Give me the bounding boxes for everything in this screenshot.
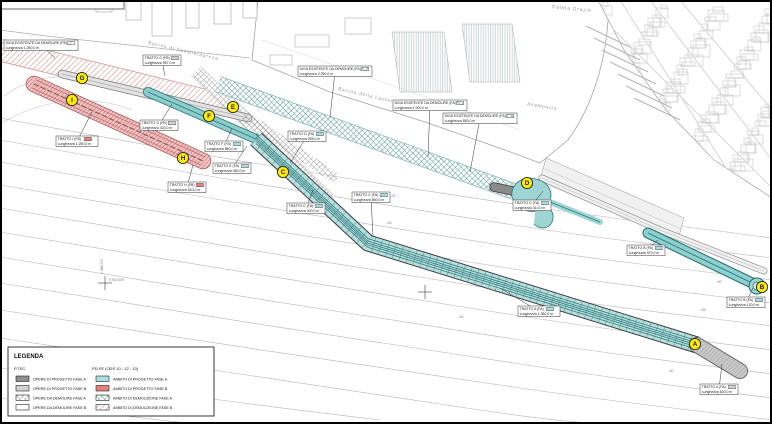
legend-right-header: PD-FE (ODS 10 - 12 - 13) (92, 366, 139, 371)
legend-item-label: AMBITO DI DEMOLIZIONE FASE A (113, 396, 172, 400)
legend-swatch (16, 405, 29, 411)
annotation-title: TRATTO D (FA) (515, 201, 540, 205)
annotation-title: TRATTO A (FA) (520, 307, 544, 311)
city-block (649, 113, 663, 120)
depth-label: -30 (386, 220, 393, 225)
annotation-swatch (457, 101, 464, 104)
section-marker-letter: B (760, 284, 765, 291)
city-block (654, 110, 662, 120)
depth-label: -55 (700, 307, 707, 312)
section-marker-f: F (203, 110, 214, 121)
annotation-title: TRATTO A (FA) (702, 385, 726, 389)
section-marker-c: C (277, 166, 288, 177)
annotation-swatch (541, 201, 548, 204)
city-block (673, 163, 686, 168)
city-block (675, 167, 690, 177)
city-block (670, 170, 678, 177)
city-block (613, 171, 623, 183)
city-block (687, 139, 696, 150)
city-block (659, 187, 676, 195)
annotation-length: Lunghezza 2.250,0 m (300, 72, 334, 76)
city-block (632, 144, 645, 156)
section-marker-letter: A (693, 341, 698, 348)
annotation-title: TRATTO G (FB) (142, 121, 167, 125)
city-block (678, 160, 685, 168)
legend-item-label: OPERE DA DEMOLIRE FASE B (33, 406, 87, 410)
annotation-length: Lunghezza 120,0 m (729, 303, 760, 307)
annotation-length: Lunghezza 970,0 m (629, 251, 660, 255)
annotation-length: Lunghezza 400,0 m (289, 209, 320, 213)
annotation-title: DIGA ESISTENTE DA DEMOLIRE (FA) (395, 101, 456, 105)
annotation-swatch (728, 385, 735, 388)
section-marker-letter: C (281, 169, 286, 176)
section-marker-i: I (66, 94, 77, 105)
city-block (614, 80, 625, 90)
city-block (624, 154, 638, 165)
annotation-swatch (362, 67, 369, 70)
legend-swatch (96, 386, 109, 392)
city-block (603, 97, 610, 108)
city-block (638, 130, 648, 138)
legend-left-header: P.TEC. (14, 366, 26, 371)
annotation-title: TRATTO G (FB) (145, 56, 170, 60)
section-marker-d: D (521, 177, 532, 188)
annotation-swatch (171, 56, 178, 59)
coordinate-north-label: 4 910 000 (109, 278, 124, 282)
section-marker-letter: E (231, 104, 235, 111)
city-block (641, 123, 656, 129)
section-marker-g: G (76, 72, 87, 83)
coordinate-east-label: 1 488 000 (100, 259, 104, 274)
legend-item-label: OPERE DI PROGETTO FASE A (33, 377, 87, 381)
annotation-swatch (546, 307, 553, 310)
annotation-title: TRATTO D (FA) (290, 132, 315, 136)
legend-swatch (16, 376, 29, 382)
legend-item-label: OPERE DA DEMOLIRE FASE A (33, 396, 86, 400)
annotation-label: TRATTO H (FB)Lunghezza 620,0 m (168, 165, 206, 193)
city-block (629, 151, 637, 156)
city-block (724, 176, 738, 180)
annotation-swatch (84, 137, 91, 140)
annotation-title: DIGA ESISTENTE DA DEMOLIRE (FA) (445, 114, 506, 118)
annotation-swatch (507, 114, 514, 117)
harbor-map-svg: Bacino di SampierdarenaBacino della Lant… (0, 0, 772, 424)
annotation-label: TRATTO G (FB)Lunghezza 957,0 m (143, 55, 181, 76)
depth-label: -50 (716, 279, 723, 284)
city-block (608, 94, 622, 99)
annotation-swatch (380, 193, 387, 196)
legend-swatch (96, 376, 109, 382)
annotation-length: Lunghezza 620,0 m (170, 188, 201, 192)
annotation-swatch (315, 204, 322, 207)
parking-rows-west (392, 32, 452, 92)
annotation-swatch (168, 121, 175, 124)
east-structures (494, 158, 765, 294)
section-marker-a: A (689, 338, 700, 349)
city-block (686, 150, 692, 159)
section-marker-e: E (227, 101, 238, 112)
annotation-length: Lunghezza 450,0 m (215, 169, 246, 173)
depth-label: -60 (668, 368, 675, 373)
annotation-length: Lunghezza 1.350,0 m (520, 312, 554, 316)
legend-item-label: AMBITO DI PROGETTO FASE A (113, 377, 168, 381)
city-block (664, 184, 675, 195)
annotation-title: TRATTO I (FB) (58, 137, 81, 141)
annotation-length: Lunghezza 420,0 m (142, 126, 173, 130)
section-marker-letter: H (181, 155, 186, 162)
harbor-plan-drawing: Bacino di SampierdarenaBacino della Lant… (0, 0, 772, 424)
city-block (610, 178, 628, 183)
annotation-swatch (68, 41, 75, 44)
annotation-title: DIGA ESISTENTE DA DEMOLIRE (FB) (6, 41, 67, 45)
section-marker-letter: G (80, 75, 85, 82)
annotation-title: TRATTO H (FB) (170, 183, 195, 187)
legend-swatch (16, 395, 29, 401)
gray-tail-section-a (697, 345, 740, 371)
legend-swatch (96, 395, 109, 401)
city-land (598, 0, 772, 198)
legend: LEGENDAP.TEC.PD-FE (ODS 10 - 12 - 13)OPE… (8, 347, 214, 416)
section-marker-h: H (177, 152, 188, 163)
legend-swatch (96, 405, 109, 411)
city-block (615, 175, 627, 183)
depth-label: -20 (390, 193, 397, 198)
city-block (672, 174, 682, 186)
annotation-swatch (233, 142, 240, 145)
annotation-swatch (755, 298, 762, 301)
annotation-length: Lunghezza 860,0 m (354, 198, 385, 202)
city-block (721, 183, 730, 189)
annotation-length: Lunghezza 1.250,0 m (6, 46, 40, 50)
annotation-length: Lunghezza 1.000,0 m (395, 106, 429, 110)
legend-item-label: OPERE DI PROGETTO FASE B (33, 387, 87, 391)
city-block (635, 137, 653, 147)
annotation-swatch (316, 132, 323, 135)
city-block (719, 179, 726, 189)
city-block (646, 120, 655, 129)
depth-label: -40 (458, 314, 465, 319)
annotation-swatch (241, 164, 248, 167)
legend-title: LEGENDA (14, 354, 44, 360)
city-block (640, 134, 652, 138)
annotation-length: Lunghezza 850,0 m (445, 119, 476, 123)
annotation-length: Lunghezza 255,0 m (290, 137, 321, 141)
annotation-title: TRATTO C (FA) (289, 204, 314, 208)
city-block (627, 147, 633, 156)
annotation-length: Lunghezza 1.250,0 m (58, 142, 92, 146)
city-block (606, 90, 618, 99)
section-marker-letter: F (207, 113, 211, 120)
annotation-title: DIGA ESISTENTE DA DEMOLIRE (FA) (300, 67, 361, 71)
city-block (667, 177, 683, 186)
east-existing-breakwater (542, 178, 764, 271)
legend-swatch (16, 386, 29, 392)
parking-rows-east (462, 24, 520, 82)
city-block (643, 127, 660, 138)
annotation-length: Lunghezza 957,0 m (145, 61, 176, 65)
legend-item-label: AMBITO DI PROGETTO FASE B (113, 387, 168, 391)
city-block (621, 161, 630, 165)
city-block (611, 87, 617, 99)
city-block (626, 158, 642, 165)
annotation-swatch (196, 183, 203, 186)
city-block (716, 186, 731, 198)
legend-item-label: AMBITO DI DEMOLIZIONE FASE B (113, 406, 173, 410)
annotation-title: TRATTO B (FA) (729, 298, 754, 302)
city-block (618, 168, 635, 174)
annotation-length: Lunghezza 620,0 m (702, 390, 733, 394)
annotation-title: TRATTO E (FA) (215, 164, 240, 168)
annotation-swatch (655, 246, 662, 249)
coordinate-marks-layer: 4 910 0001 488 000 (98, 259, 432, 299)
annotation-length: Lunghezza 310,0 m (515, 206, 546, 210)
city-block (684, 146, 701, 150)
annotation-length: Lunghezza 880,0 m (207, 147, 238, 151)
annotation-title: TRATTO B (FA) (629, 246, 654, 250)
annotation-title: TRATTO F (FA) (207, 142, 231, 146)
section-marker-letter: D (525, 180, 530, 187)
annotation-title: TRATTO C (FA) (354, 193, 379, 197)
section-marker-letter: I (71, 97, 73, 104)
city-block (681, 153, 693, 159)
section-marker-b: B (756, 281, 767, 292)
